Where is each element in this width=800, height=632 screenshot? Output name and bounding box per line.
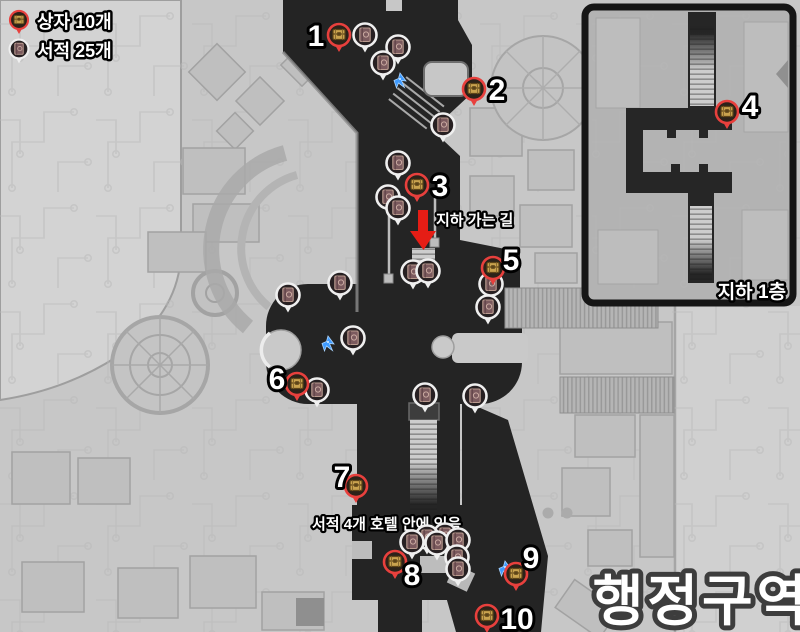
chest-number-8: 8: [404, 559, 421, 592]
region-title: 행정구역: [593, 570, 800, 632]
chest-number-5: 5: [503, 244, 520, 277]
chest-number-10: 10: [500, 603, 533, 632]
chest-number-6: 6: [269, 363, 286, 396]
underground-path-label: 지하 가는 길: [436, 212, 513, 229]
chest-number-1: 1: [308, 20, 325, 53]
map-canvas: 지하 1층 지하 가는 길 서적 4개 호텔 안에 있음 12345678910…: [0, 0, 800, 632]
inset-floor-label: 지하 1층: [718, 281, 786, 303]
building-near-2: [424, 62, 468, 96]
chest-number-9: 9: [523, 542, 540, 575]
chest-number-3: 3: [432, 170, 449, 203]
chest-number-7: 7: [334, 461, 351, 494]
legend-chest-label: 상자 10개: [37, 12, 112, 32]
round-plaza: [491, 36, 595, 140]
legend-book-label: 서적 25개: [37, 41, 112, 61]
chest-number-2: 2: [489, 74, 506, 107]
basement-inset-map: 지하 1층: [585, 7, 793, 303]
game-map-screenshot: 지하 1층 지하 가는 길 서적 4개 호텔 안에 있음 12345678910…: [0, 0, 800, 632]
central-stairs: [409, 403, 439, 512]
chest-number-4: 4: [742, 90, 759, 123]
